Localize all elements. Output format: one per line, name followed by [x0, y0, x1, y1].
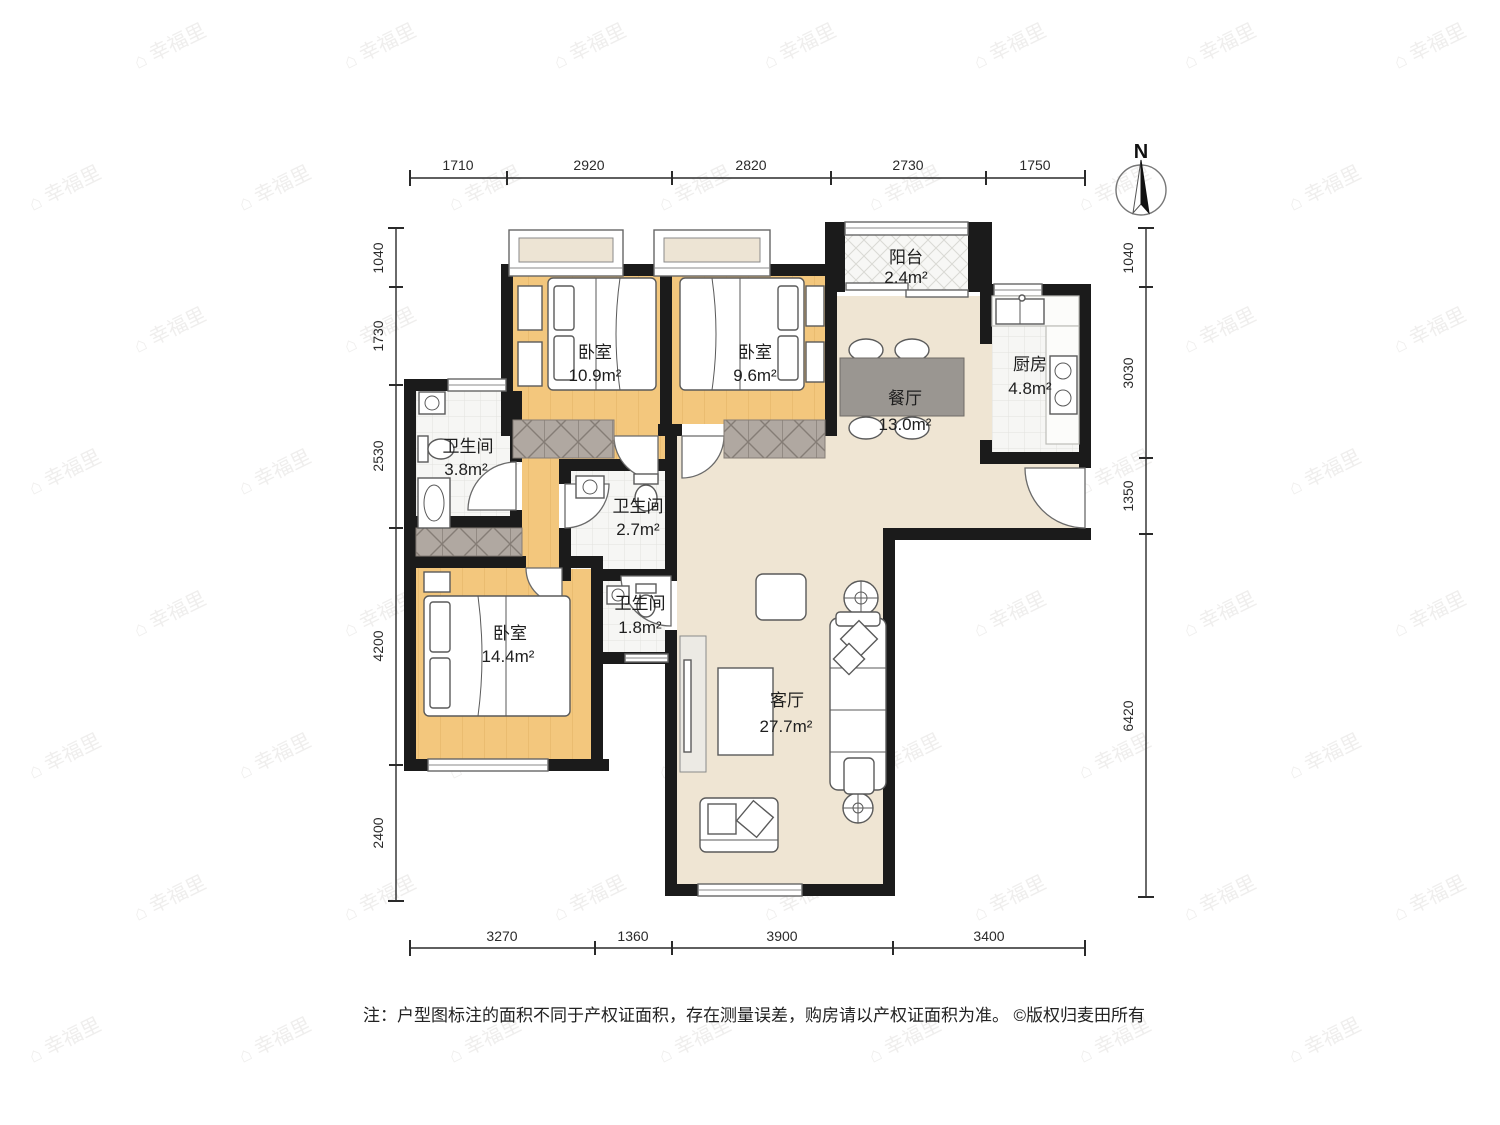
- bay-window-icon: [509, 230, 623, 276]
- vent-window-icon: [625, 654, 668, 662]
- dim-label: 1040: [1120, 242, 1136, 273]
- faucet-icon: [419, 392, 445, 414]
- room-area-label: 9.6m²: [733, 366, 777, 385]
- floor-lamp-icon: [843, 793, 873, 823]
- stove-icon: [1050, 356, 1077, 414]
- dim-label: 3270: [486, 928, 517, 944]
- dim-label: 3400: [973, 928, 1004, 944]
- dim-label: 1710: [442, 157, 473, 173]
- kitchen-sink-icon: [996, 295, 1044, 324]
- room-name-label: 餐厅: [888, 389, 922, 408]
- dim-label: 4200: [370, 630, 386, 661]
- dimension-bottom: 3270 1360 3900 3400: [410, 928, 1085, 956]
- dim-label: 2530: [370, 440, 386, 471]
- dim-label: 3030: [1120, 357, 1136, 388]
- room-area-label: 4.8m²: [1008, 379, 1052, 398]
- dim-label: 3900: [766, 928, 797, 944]
- kitchen-window-icon: [994, 284, 1042, 296]
- dimension-left: 1040 1730 2530 4200 2400: [370, 228, 404, 901]
- room-area-label: 14.4m²: [482, 647, 535, 666]
- room-area-label: 2.7m²: [616, 520, 660, 539]
- dim-label: 2820: [735, 157, 766, 173]
- room-name-label: 卧室: [578, 343, 612, 362]
- room-name-label: 阳台: [889, 248, 923, 267]
- dim-label: 2400: [370, 817, 386, 848]
- compass-needle-icon: [1141, 160, 1149, 213]
- dim-label: 1350: [1120, 480, 1136, 511]
- washbasin-icon: [418, 478, 450, 528]
- loveseat-icon: [700, 798, 778, 852]
- disclaimer-note: 注：户型图标注的面积不同于产权证面积，存在测量误差，购房请以产权证面积为准。: [363, 1001, 1009, 1026]
- dim-label: 6420: [1120, 700, 1136, 731]
- dim-label: 1750: [1019, 157, 1050, 173]
- dim-label: 1730: [370, 320, 386, 351]
- north-compass: N: [1116, 141, 1166, 215]
- wardrobe-icon: [724, 420, 825, 458]
- balcony-window-icon: [845, 222, 968, 235]
- compass-needle-icon: [1133, 160, 1141, 213]
- room-area-label: 13.0m²: [879, 415, 932, 434]
- copyright-note: ©版权归麦田所有: [1013, 1001, 1145, 1026]
- room-name-label: 厨房: [1013, 355, 1047, 374]
- room-area-label: 1.8m²: [618, 618, 662, 637]
- room-area-label: 10.9m²: [569, 366, 622, 385]
- room-balcony: 阳台 2.4m²: [884, 248, 928, 287]
- floor-plan: 阳台 2.4m² 卧室 10.9m² 卧室 9.6m² 餐厅 13.0m² 厨房…: [0, 0, 1500, 1125]
- room-name-label: 卫生间: [615, 594, 666, 613]
- dimension-right: 1040 3030 1350 6420: [1120, 228, 1154, 897]
- dimension-top: 1710 2920 2820 2730 1750: [410, 157, 1085, 186]
- room-name-label: 卫生间: [443, 437, 494, 456]
- footer: 注：户型图标注的面积不同于产权证面积，存在测量误差，购房请以产权证面积为准。 ©…: [363, 1001, 1145, 1026]
- room-name-label: 客厅: [770, 691, 804, 710]
- north-label: N: [1134, 141, 1148, 163]
- room-area-label: 3.8m²: [444, 460, 488, 479]
- dim-label: 1040: [370, 242, 386, 273]
- side-table-icon: [756, 574, 806, 620]
- dim-label: 1360: [617, 928, 648, 944]
- bathroom-window-icon: [448, 379, 506, 391]
- living-window-icon: [698, 884, 802, 896]
- sofa-icon: [830, 612, 886, 794]
- room-area-label: 27.7m²: [760, 717, 813, 736]
- dim-label: 2730: [892, 157, 923, 173]
- floorplan-page: ⌂ 幸福里⌂ 幸福里⌂ 幸福里⌂ 幸福里⌂ 幸福里⌂ 幸福里⌂ 幸福里⌂ 幸福里…: [0, 0, 1500, 1125]
- tv-stand-icon: [680, 636, 706, 772]
- room-area-label: 2.4m²: [884, 268, 928, 287]
- bedroom-window-icon: [428, 759, 548, 771]
- room-name-label: 卫生间: [613, 497, 664, 516]
- room-name-label: 卧室: [738, 343, 772, 362]
- dim-label: 2920: [573, 157, 604, 173]
- sink-icon: [576, 476, 604, 498]
- wardrobe-icon: [416, 528, 522, 556]
- coffee-table-icon: [718, 668, 773, 755]
- wardrobe-icon: [513, 420, 614, 458]
- room-name-label: 卧室: [493, 624, 527, 643]
- floor-lamp-icon: [844, 581, 878, 615]
- bay-window-icon: [654, 230, 770, 276]
